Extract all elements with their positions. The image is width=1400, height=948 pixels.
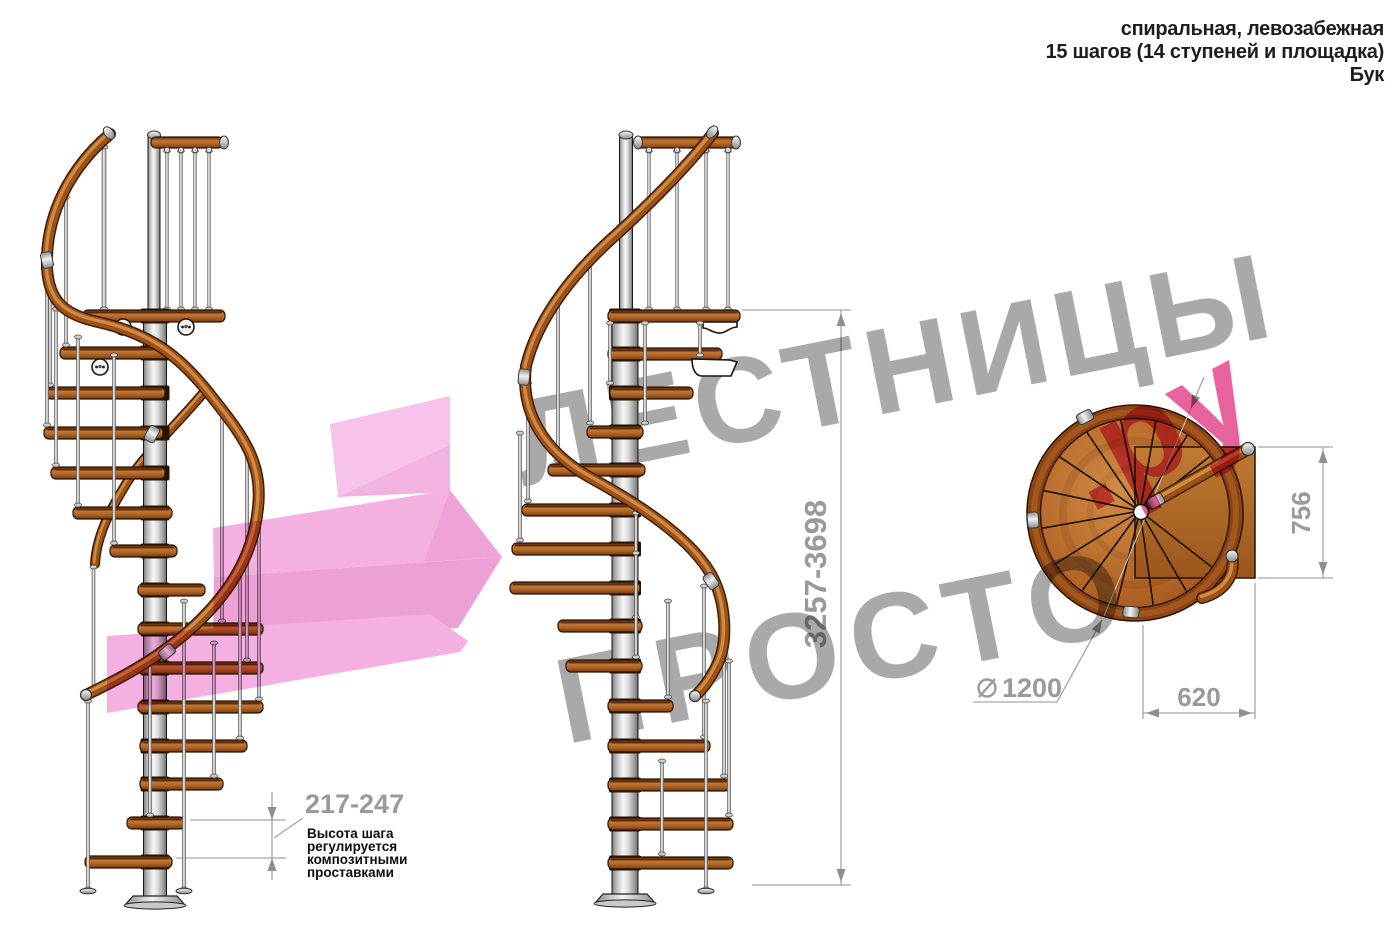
baluster-ball [646,147,651,152]
baluster-ball [725,147,730,152]
baluster [87,700,90,890]
baluster-flange [703,699,710,703]
mount-plate-hole [188,326,191,329]
wall-bracket [692,359,737,376]
baluster-flange [90,565,97,569]
baluster [705,150,708,310]
landing-rail [151,137,223,148]
mount-plate-hole [184,325,188,329]
baluster-ball [206,147,211,152]
baluster-foot [80,888,96,894]
landing-rail-cap [634,136,643,149]
baluster-flange [665,695,672,699]
baluster-flange [697,353,704,357]
left-side-view [40,125,263,909]
baluster-flange [642,421,649,425]
dim-arrow [1319,562,1328,575]
baluster [92,566,95,692]
baluster-flange [53,463,60,467]
baluster [77,336,80,506]
baluster [667,600,670,698]
baluster [102,146,106,310]
title-line-material: Бук [1046,64,1384,87]
baluster-flange [726,813,733,817]
baluster [194,150,197,310]
baluster-flange [111,541,118,545]
drawing-canvas: 3257-3698 217-247 756 620 1200 Высота ша… [0,0,1400,948]
baluster [644,322,647,424]
baluster-flange [607,321,614,325]
baluster [727,150,730,310]
step-height-annotation: Высота шага регулируется композитными пр… [307,826,407,880]
baluster-flange [607,381,614,385]
baluster-flange [517,431,524,435]
dim-line [274,818,303,838]
mount-plate-hole [181,326,184,329]
baluster [519,432,522,541]
landing-width-dimension: 620 [1177,682,1220,712]
baluster-flange [237,736,244,740]
dim-arrow [837,869,846,882]
mount-plate-hole [95,366,98,369]
baluster [705,700,708,890]
baluster-flange [659,759,666,763]
baluster-foot [176,888,192,894]
handrail-endcap [81,690,92,701]
baluster-flange [633,655,640,659]
staircase-drawing: 3257-3698 217-247 756 620 1200 Высота ша… [0,0,1400,948]
center-pole [144,316,167,896]
center-pole [148,134,160,316]
baluster-flange [211,774,218,778]
title-line-steps: 15 шагов (14 ступеней и площадка) [1046,41,1384,64]
baluster [699,322,702,356]
baluster [609,322,612,384]
baluster-flange [147,813,154,817]
baluster-flange [525,499,532,503]
baluster [648,150,651,310]
landing-rail-cap [220,136,229,149]
baluster-flange [697,321,704,325]
mount-plate-hole [102,366,105,369]
middle-side-view [510,124,741,907]
landing-rail [636,137,738,148]
landing-depth-dimension: 756 [1286,491,1316,534]
baluster [557,300,560,462]
baluster [180,150,183,310]
baluster-flange [726,659,733,663]
landing-rail-cap [732,136,741,149]
baluster-flange [587,421,594,425]
pole-base-plate [124,902,186,909]
baluster-foot [698,888,714,894]
baluster [55,308,58,466]
center-pole [612,316,638,894]
baluster-ball [178,147,183,152]
baluster-flange [659,852,666,856]
title-line-type: спиральная, левозабежная [1046,18,1384,41]
annotation-line: проставками [307,865,394,880]
baluster-flange [75,335,82,339]
rail-joint-sleeve [1027,512,1039,529]
baluster [728,660,731,816]
handrail-endcap [690,691,701,702]
baluster [208,150,211,310]
baluster-ball [192,147,197,152]
baluster [589,258,592,424]
baluster-flange [721,774,728,778]
baluster-flange [517,538,524,542]
dim-arrow [268,858,277,871]
mount-plate-hole [98,365,102,369]
baluster-flange [181,599,188,603]
baluster-flange [44,423,51,427]
post-cap [619,131,633,139]
handrail-endcap [1226,550,1238,562]
baluster-flange [111,353,118,357]
baluster [65,196,68,346]
step-height-dimension: 217-247 [305,789,404,819]
baluster-ball [164,147,169,152]
baluster [635,552,638,658]
baluster [661,760,664,855]
dim-arrow [1239,709,1252,718]
baluster [166,150,169,310]
baluster-flange [256,697,263,701]
dim-arrow [268,807,277,820]
baluster-flange [63,343,70,347]
baluster-flange [75,503,82,507]
rail-joint-sleeve [518,369,530,386]
dim-arrow [1146,709,1159,718]
baluster-flange [642,321,649,325]
title-block: спиральная, левозабежная 15 шагов (14 ст… [1046,18,1384,87]
baluster-flange [633,551,640,555]
baluster-ball [674,147,679,152]
baluster [113,354,116,544]
dim-arrow [1319,450,1328,463]
pole-base-plate [594,900,656,907]
baluster-flange [665,599,672,603]
